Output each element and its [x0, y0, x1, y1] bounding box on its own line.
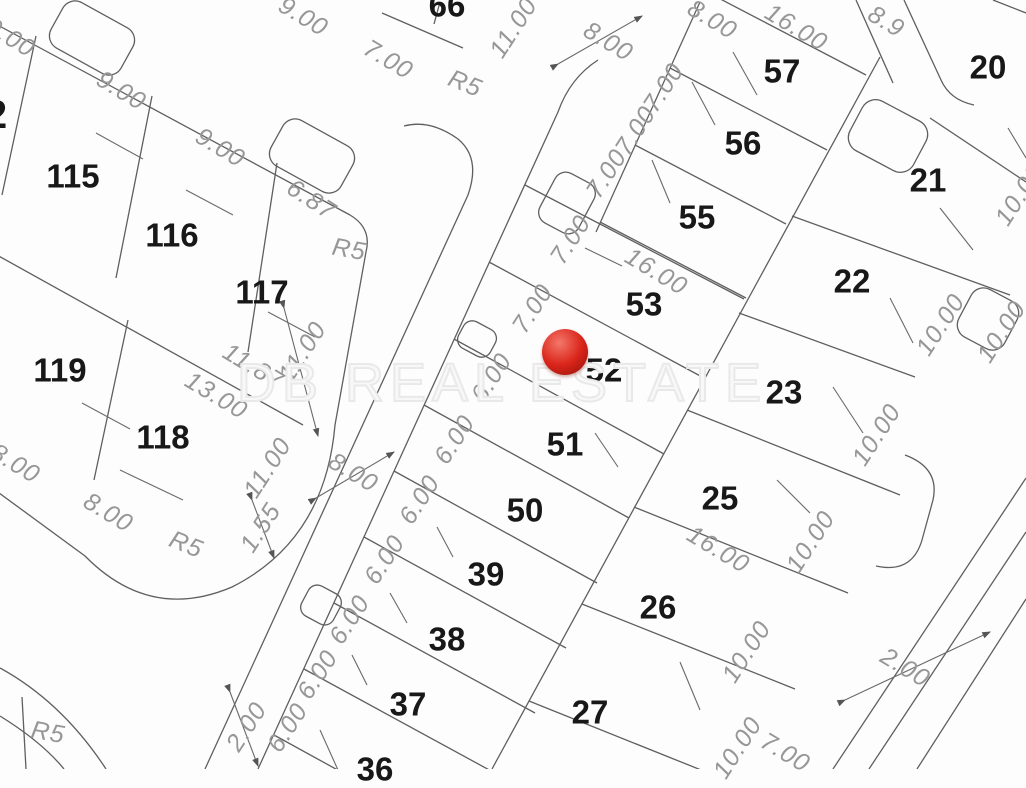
cadastral-map: 9.009.009.006.879.007.00R5R511.8713.0011…: [0, 0, 1026, 769]
bottomleft-corner-lines: [0, 668, 106, 769]
watermark: DB REAL ESTATE: [237, 352, 767, 414]
location-pin[interactable]: [542, 329, 588, 375]
block-topleft-lines: [0, 0, 367, 599]
